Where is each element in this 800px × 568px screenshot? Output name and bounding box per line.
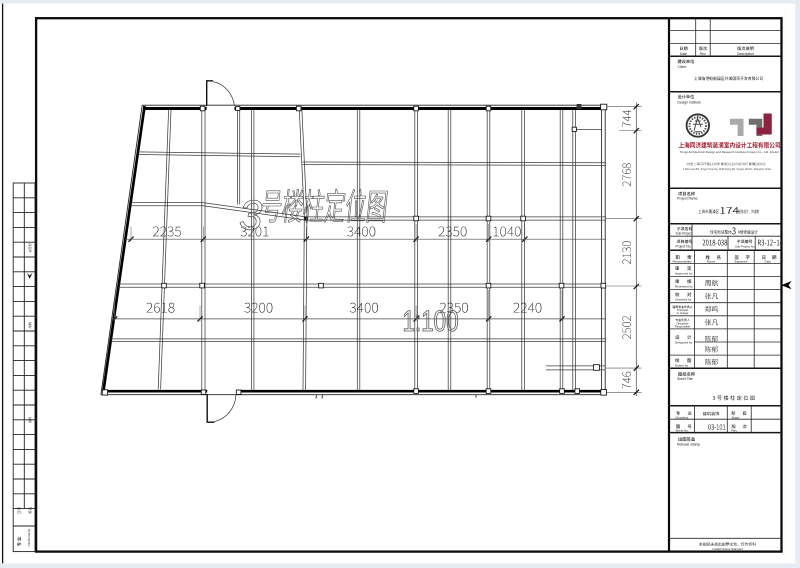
svg-text:Project Name: Project Name	[677, 196, 698, 200]
svg-text:9 Wenyuan Bld, Tongji Universi: 9 Wenyuan Bld, Tongji University, 1239 S…	[683, 167, 771, 171]
svg-text:Signature: Signature	[734, 260, 748, 264]
svg-text:Checked by: Checked by	[675, 298, 692, 302]
svg-text:Sub-Project: Sub-Project	[676, 231, 693, 235]
svg-text:Client: Client	[678, 65, 687, 69]
svg-text:Stage: Stage	[732, 415, 740, 419]
svg-text:Drawn by: Drawn by	[675, 364, 689, 368]
svg-text:Sheet No.: Sheet No.	[676, 429, 690, 433]
svg-text:Release Stamp: Release Stamp	[677, 442, 700, 446]
svg-text:Reviewed by: Reviewed by	[675, 285, 693, 289]
svg-text:Discipline: Discipline	[676, 415, 689, 419]
svg-text:Date: Date	[680, 52, 687, 56]
svg-text:Description: Description	[737, 52, 754, 56]
svg-text:Rev.: Rev.	[700, 52, 707, 56]
svg-text:Sub-Project No.: Sub-Project No.	[735, 245, 756, 249]
svg-text:Invalid Unless Stamped: Invalid Unless Stamped	[712, 547, 743, 551]
svg-text:Name: Name	[707, 260, 716, 264]
svg-text:Approved by: Approved by	[675, 272, 693, 276]
svg-text:In charge: In charge	[677, 311, 689, 315]
svg-text:Responsibility: Responsibility	[672, 260, 692, 264]
svg-text:Responsible: Responsible	[675, 324, 691, 328]
svg-text:Sheet Title: Sheet Title	[677, 377, 693, 381]
svg-text:Rev.: Rev.	[732, 429, 738, 433]
svg-text:Date: Date	[765, 260, 772, 264]
svg-text:Tongji Architectural Design an: Tongji Architectural Design and Research…	[680, 150, 779, 154]
svg-text:Designed by: Designed by	[675, 341, 693, 345]
svg-text:Project No.: Project No.	[676, 245, 692, 249]
svg-text:Design Institute: Design Institute	[678, 100, 701, 104]
